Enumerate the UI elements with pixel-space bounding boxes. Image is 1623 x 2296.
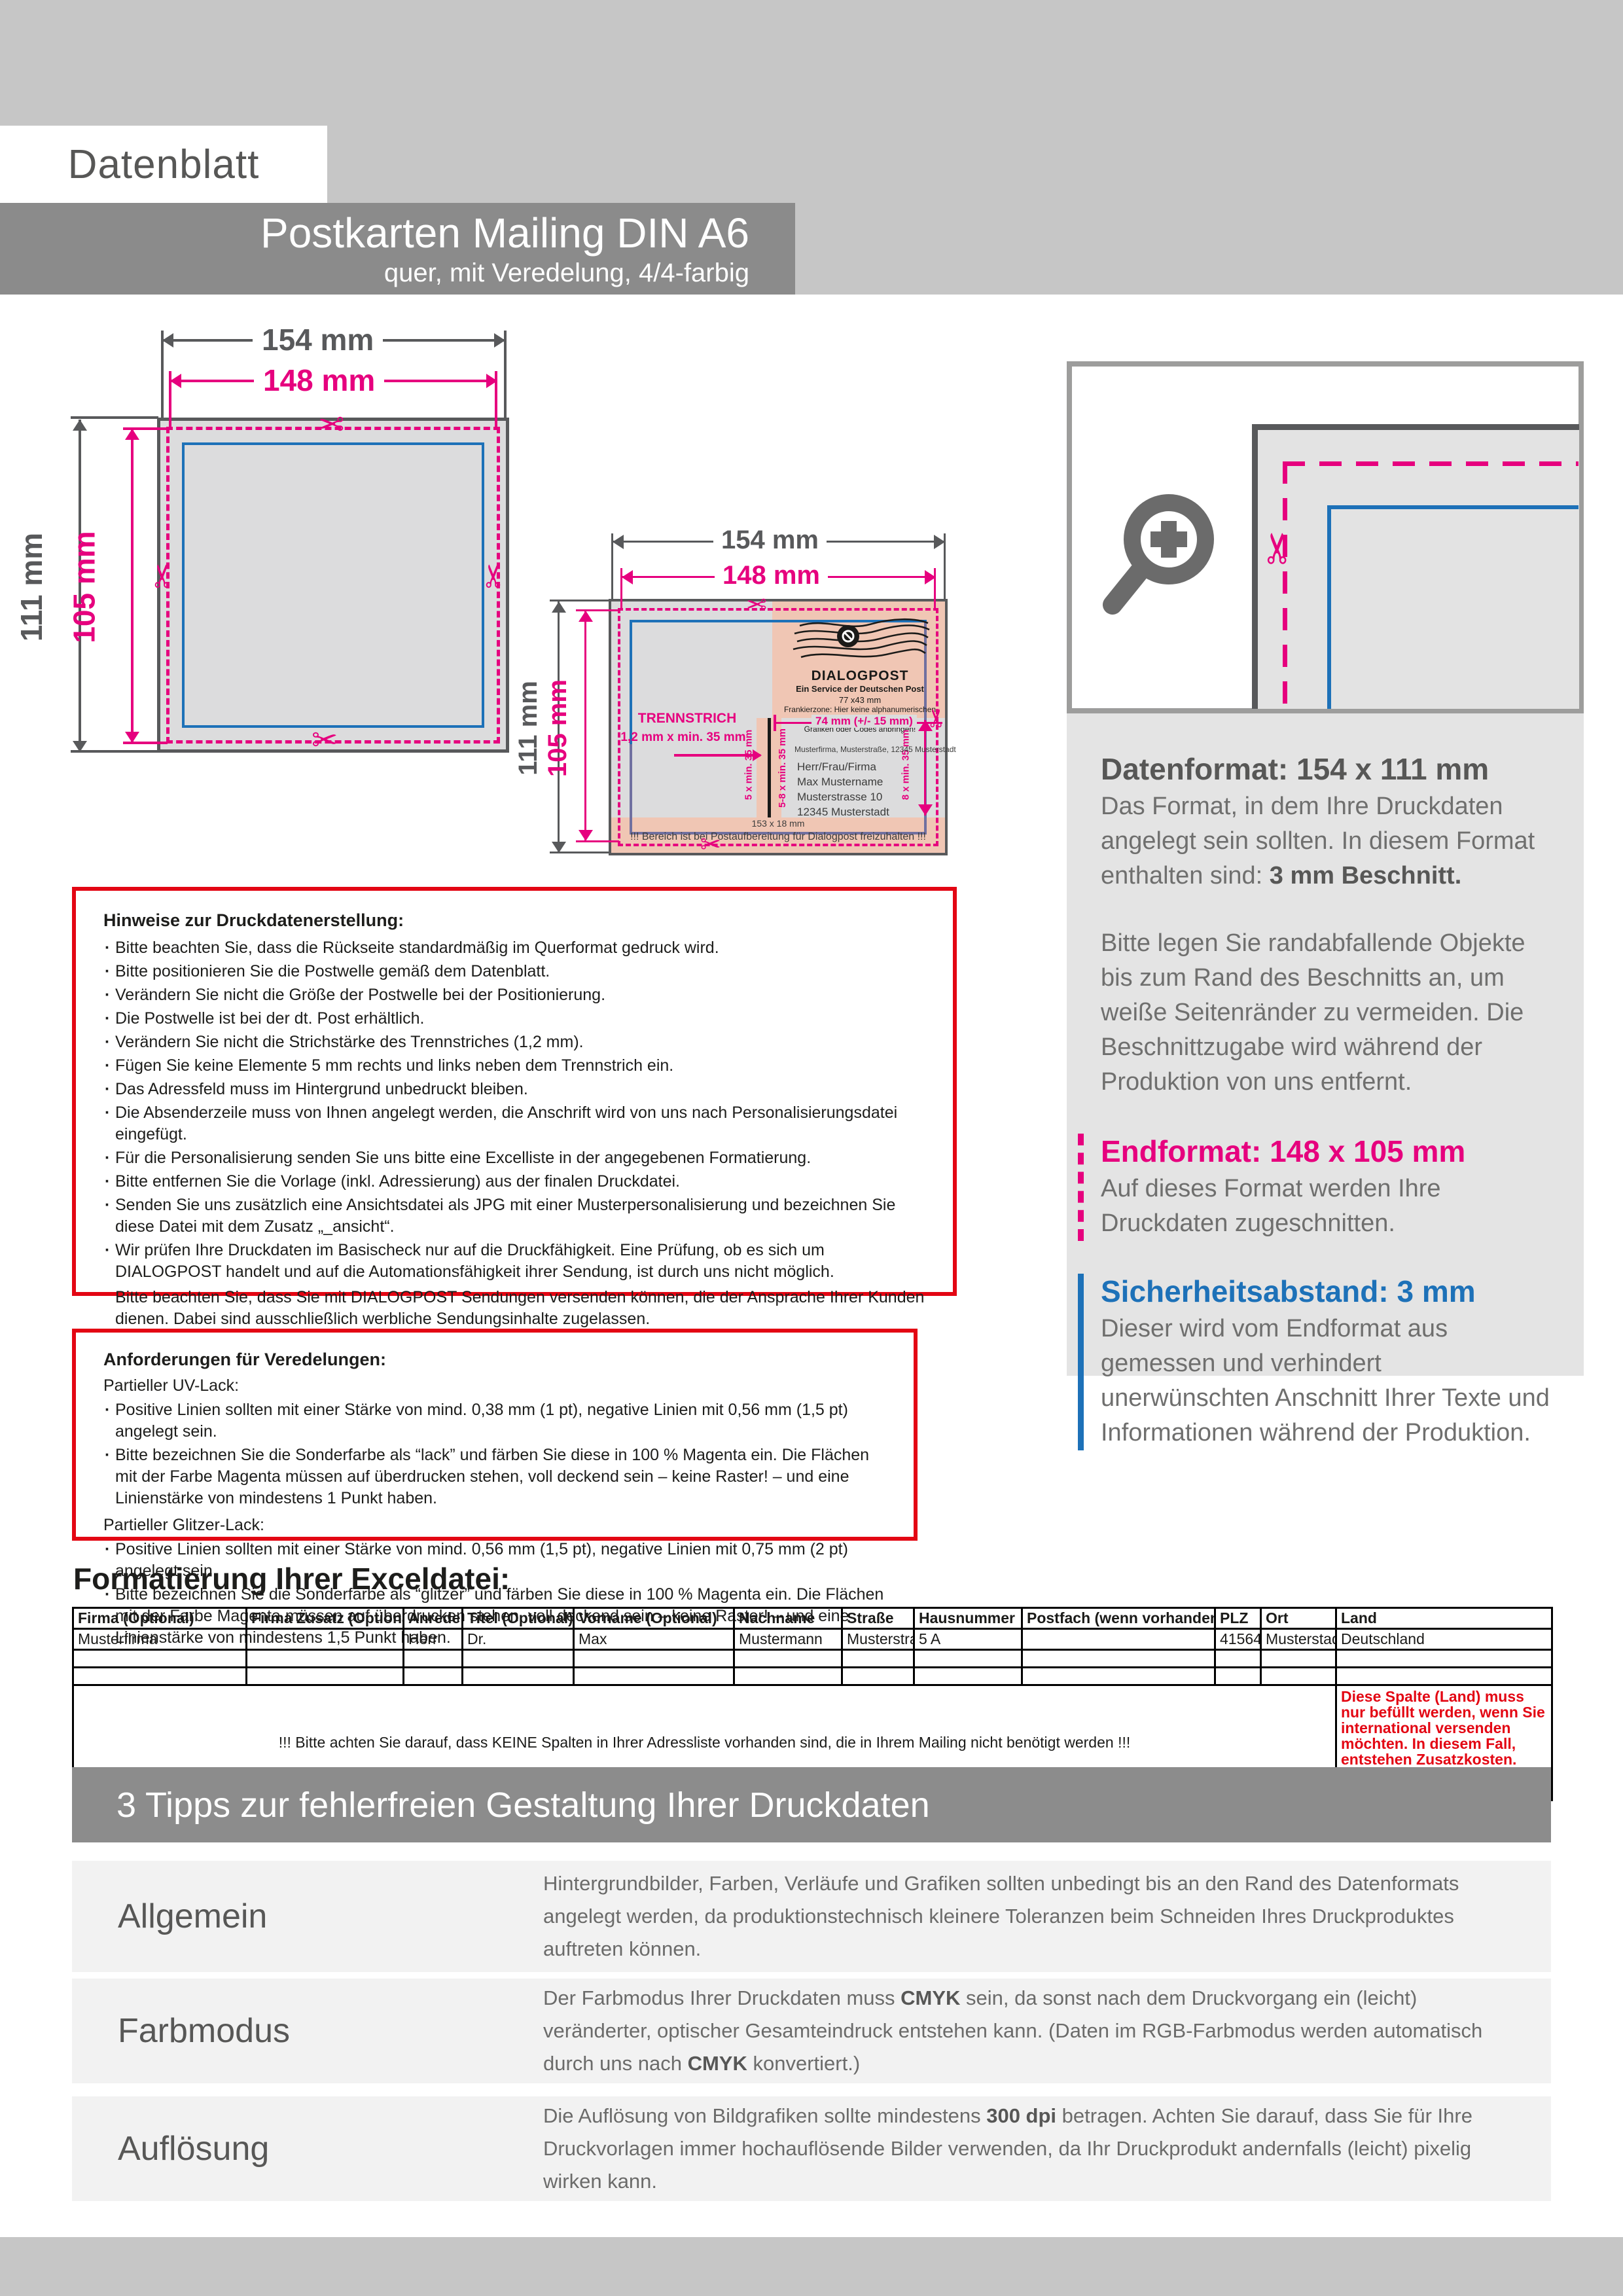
table-row-empty	[73, 1650, 1552, 1668]
datenblatt-label: Datenblatt	[0, 126, 327, 203]
page-subtitle: quer, mit Veredelung, 4/4-farbig	[0, 257, 749, 289]
table-cell	[842, 1650, 914, 1668]
footer-background	[0, 2237, 1623, 2296]
illustration-cutline-v	[1283, 461, 1287, 709]
dim-8x35-arrow	[924, 720, 926, 816]
format-info-panel: Datenformat: 154 x 111 mm Das Format, in…	[1067, 713, 1584, 1376]
hinweise-title: Hinweise zur Druckdatenerstellung:	[103, 910, 933, 931]
hinweis-item: Verändern Sie nicht die Größe der Postwe…	[103, 984, 933, 1006]
bleed-text: Bitte legen Sie randabfallende Objekte b…	[1101, 926, 1552, 1100]
column-header: Firma Zusatz (Optional)	[247, 1608, 404, 1629]
hinweis-item: Für die Personalisierung senden Sie uns …	[103, 1147, 933, 1169]
table-cell	[1336, 1668, 1552, 1685]
table-cell	[574, 1668, 734, 1685]
sicherheitsabstand-block: Sicherheitsabstand: 3 mm Dieser wird vom…	[1078, 1274, 1552, 1450]
dim-connector	[123, 742, 168, 744]
scissors-icon: ✂	[318, 410, 344, 441]
dim-connector	[71, 416, 158, 419]
table-row-empty	[73, 1668, 1552, 1685]
column-header: Vorname (Optional)	[574, 1608, 734, 1629]
table-row: Musterfirma Herr Dr. Max Mustermann Must…	[73, 1629, 1552, 1650]
stamp-size: 77 x43 mm	[783, 695, 937, 705]
datenformat-text-bold: 3 mm Beschnitt.	[1270, 862, 1462, 889]
dim-74mm-label: 74 mm (+/- 15 mm)	[811, 715, 917, 728]
post-wave-graphic	[788, 617, 932, 664]
table-cell	[914, 1668, 1022, 1685]
hinweis-item: Wir prüfen Ihre Druckdaten im Basischeck…	[103, 1240, 933, 1283]
table-cell	[1215, 1650, 1261, 1668]
table-cell	[1261, 1650, 1336, 1668]
dim-connector	[620, 568, 622, 609]
tip-text-bold: CMYK	[901, 1986, 960, 2009]
datenformat-title: Datenformat: 154 x 111 mm	[1101, 751, 1552, 787]
table-cell	[1336, 1650, 1552, 1668]
scissors-icon: ✂	[925, 708, 950, 728]
address-block: Herr/Frau/Firma Max Mustername Musterstr…	[797, 759, 889, 819]
hinweis-item: Bitte beachten Sie, dass die Rückseite s…	[103, 937, 933, 959]
tip-text-part: konvertiert.)	[747, 2052, 860, 2075]
bleed-illustration-box: ✂	[1067, 361, 1584, 713]
datasheet-page: Datenblatt Postkarten Mailing DIN A6 que…	[0, 0, 1623, 2296]
address-line: Herr/Frau/Firma	[797, 759, 889, 774]
stamp-title: DIALOGPOST	[783, 668, 937, 684]
scissors-icon: ✂	[148, 563, 179, 589]
scissors-icon: ✂	[479, 563, 510, 589]
title-bar: Postkarten Mailing DIN A6 quer, mit Vere…	[0, 203, 795, 295]
endformat-block: Endformat: 148 x 105 mm Auf dieses Forma…	[1078, 1134, 1552, 1241]
uv-lack-item: Positive Linien sollten mit einer Stärke…	[103, 1399, 894, 1443]
druckdaten-hinweise-box: Hinweise zur Druckdatenerstellung: Bitte…	[72, 887, 957, 1296]
table-header-row: Firma (Optional) Firma Zusatz (Optional)…	[73, 1608, 1552, 1629]
tip-label: Farbmodus	[72, 2011, 543, 2051]
table-cell: Musterfirma	[73, 1629, 247, 1650]
table-cell	[1022, 1629, 1215, 1650]
scissors-icon: ✂	[700, 833, 721, 857]
table-cell	[247, 1650, 404, 1668]
table-cell: Herr	[404, 1629, 463, 1650]
address-line: Musterstrasse 10	[797, 789, 889, 804]
illustration-cutline-h	[1283, 461, 1578, 466]
hinweis-item: Fügen Sie keine Elemente 5 mm rechts und…	[103, 1055, 933, 1077]
diagram2-154mm-label: 154 mm	[713, 526, 827, 555]
table-cell	[734, 1668, 842, 1685]
diagram1-safety-line	[182, 442, 484, 728]
tips-section-heading: 3 Tipps zur fehlerfreien Gestaltung Ihre…	[72, 1767, 1551, 1842]
table-cell: Max	[574, 1629, 734, 1650]
diagram1-105mm-arrow	[131, 429, 134, 743]
table-cell: Musterstraße	[842, 1629, 914, 1650]
dim-connector	[71, 750, 158, 753]
dim-connector	[944, 533, 946, 599]
tip-row-allgemein: Allgemein Hintergrundbilder, Farben, Ver…	[72, 1861, 1551, 1972]
table-cell	[1261, 1668, 1336, 1685]
table-cell	[734, 1650, 842, 1668]
keepout-note: !!! Bereich ist bei Postaufbereitung für…	[611, 831, 945, 843]
diagram1-148mm-label: 148 mm	[254, 363, 384, 398]
diagram2-111mm-label: 111 mm	[514, 681, 543, 776]
table-cell	[247, 1668, 404, 1685]
stamp-subtitle: Ein Service der Deutschen Post	[783, 684, 937, 694]
scissors-icon: ✂	[1253, 531, 1302, 566]
tip-text: Der Farbmodus Ihrer Druckdaten muss CMYK…	[543, 1982, 1505, 2080]
dim-connector	[161, 331, 164, 418]
diagram2-105mm-label: 105 mm	[543, 679, 573, 777]
table-cell: Mustermann	[734, 1629, 842, 1650]
scissors-icon: ✂	[312, 725, 338, 757]
hinweis-item: Die Absenderzeile muss von Ihnen angeleg…	[103, 1102, 933, 1145]
table-cell: Deutschland	[1336, 1629, 1552, 1650]
dim-connector	[169, 371, 171, 430]
table-cell: Dr.	[463, 1629, 574, 1650]
tip-text: Die Auflösung von Bildgrafiken sollte mi…	[543, 2100, 1505, 2198]
dim-connector	[576, 609, 619, 611]
column-header: Titel (Optional)	[463, 1608, 574, 1629]
column-header: Anrede	[404, 1608, 463, 1629]
tip-text-part: Die Auflösung von Bildgrafiken sollte mi…	[543, 2104, 986, 2127]
dim-connector	[504, 331, 507, 418]
table-cell	[247, 1629, 404, 1650]
table-cell	[463, 1650, 574, 1668]
sicherheitsabstand-text: Dieser wird vom Endformat aus gemessen u…	[1101, 1312, 1552, 1450]
datenformat-text: Das Format, in dem Ihre Druckdaten angel…	[1101, 789, 1552, 893]
table-cell	[404, 1650, 463, 1668]
glitzer-lack-subtitle: Partieller Glitzer-Lack:	[103, 1516, 894, 1535]
table-cell: Musterstadt	[1261, 1629, 1336, 1650]
column-header: Land	[1336, 1608, 1552, 1629]
sender-line: Musterfirma, Musterstraße, 12345 Musters…	[794, 745, 956, 754]
column-header: Nachname	[734, 1608, 842, 1629]
table-cell	[1022, 1650, 1215, 1668]
tip-row-farbmodus: Farbmodus Der Farbmodus Ihrer Druckdaten…	[72, 1979, 1551, 2083]
dim-connector	[550, 852, 610, 853]
table-cell	[73, 1650, 247, 1668]
tip-label: Allgemein	[72, 1897, 543, 1936]
tip-label: Auflösung	[72, 2129, 543, 2168]
diagram2-148mm-label: 148 mm	[715, 561, 828, 590]
hinweis-item: Bitte entfernen Sie die Vorlage (inkl. A…	[103, 1171, 933, 1193]
scissors-icon: ✂	[746, 593, 767, 618]
table-cell	[463, 1668, 574, 1685]
column-header: Postfach (wenn vorhanden)	[1022, 1608, 1215, 1629]
keepout-dimension: 153 x 18 mm	[611, 818, 945, 829]
dim-connector	[550, 600, 610, 601]
dim-connector	[611, 533, 613, 599]
dim-connector	[123, 427, 168, 430]
tip-row-aufloesung: Auflösung Die Auflösung von Bildgrafiken…	[72, 2096, 1551, 2201]
dim-5x35-label: 5 x min. 35 mm	[743, 730, 754, 800]
column-header: Straße	[842, 1608, 914, 1629]
page-title: Postkarten Mailing DIN A6	[0, 209, 749, 257]
uv-lack-subtitle: Partieller UV-Lack:	[103, 1376, 894, 1395]
column-header: PLZ	[1215, 1608, 1261, 1629]
tip-text-part: Der Farbmodus Ihrer Druckdaten muss	[543, 1986, 901, 2009]
trennstrich-line	[768, 718, 771, 817]
diagram2-105mm-arrow	[584, 611, 586, 841]
table-cell: 5 A	[914, 1629, 1022, 1650]
hinweis-paragraph: Bitte beachten Sie, dass Sie mit DIALOGP…	[103, 1287, 933, 1330]
hinweis-item: Die Postwelle ist bei der dt. Post erhäl…	[103, 1008, 933, 1030]
diagram1-111mm-label: 111 mm	[14, 533, 49, 641]
table-cell	[914, 1650, 1022, 1668]
sicherheitsabstand-title: Sicherheitsabstand: 3 mm	[1101, 1274, 1552, 1309]
column-header: Firma (Optional)	[73, 1608, 247, 1629]
illustration-paper-corner	[1252, 424, 1579, 709]
hinweis-item: Senden Sie uns zusätzlich eine Ansichtsd…	[103, 1194, 933, 1238]
endformat-text: Auf dieses Format werden Ihre Druckdaten…	[1101, 1172, 1552, 1241]
veredelung-anforderungen-box: Anforderungen für Veredelungen: Partiell…	[72, 1329, 918, 1541]
uv-lack-item: Bitte bezeichnen Sie die Sonderfarbe als…	[103, 1444, 894, 1509]
magnifier-zoom-icon	[1097, 484, 1228, 628]
table-cell	[1022, 1668, 1215, 1685]
table-cell	[73, 1668, 247, 1685]
veredelung-title: Anforderungen für Veredelungen:	[103, 1350, 894, 1370]
dim-8x35-label: 8 x min. 35 mm	[900, 730, 911, 800]
dim-connector	[576, 840, 619, 842]
trennstrich-dimension: 1,2 mm x min. 35 mm	[607, 730, 759, 745]
dim-connector	[934, 568, 936, 609]
endformat-title: Endformat: 148 x 105 mm	[1101, 1134, 1552, 1169]
address-line: 12345 Musterstadt	[797, 804, 889, 819]
table-cell	[574, 1650, 734, 1668]
tip-text: Hintergrundbilder, Farben, Verläufe und …	[543, 1867, 1505, 1965]
table-cell	[1215, 1668, 1261, 1685]
hinweis-item: Das Adressfeld muss im Hintergrund unbed…	[103, 1079, 933, 1100]
excel-section-heading: Formatierung Ihrer Exceldatei:	[73, 1561, 510, 1596]
tip-text-bold: CMYK	[688, 2052, 747, 2075]
illustration-safety-v	[1327, 505, 1331, 709]
hinweis-item: Verändern Sie nicht die Strichstärke des…	[103, 1031, 933, 1053]
column-header: Hausnummer	[914, 1608, 1022, 1629]
trennstrich-label: TRENNSTRICH	[615, 711, 759, 726]
diagram1-154mm-label: 154 mm	[253, 322, 383, 357]
table-cell	[842, 1668, 914, 1685]
address-line: Max Mustername	[797, 774, 889, 789]
illustration-safety-h	[1327, 505, 1578, 509]
dim-connector	[495, 371, 497, 430]
dim-58x35-label: 5-8 x min. 35 mm	[777, 728, 788, 808]
tip-text-bold: 300 dpi	[986, 2104, 1056, 2127]
hinweis-item: Bitte positionieren Sie die Postwelle ge…	[103, 961, 933, 982]
diagram1-105mm-label: 105 mm	[67, 531, 102, 643]
column-header: Ort	[1261, 1608, 1336, 1629]
table-cell	[404, 1668, 463, 1685]
table-cell: 41564	[1215, 1629, 1261, 1650]
